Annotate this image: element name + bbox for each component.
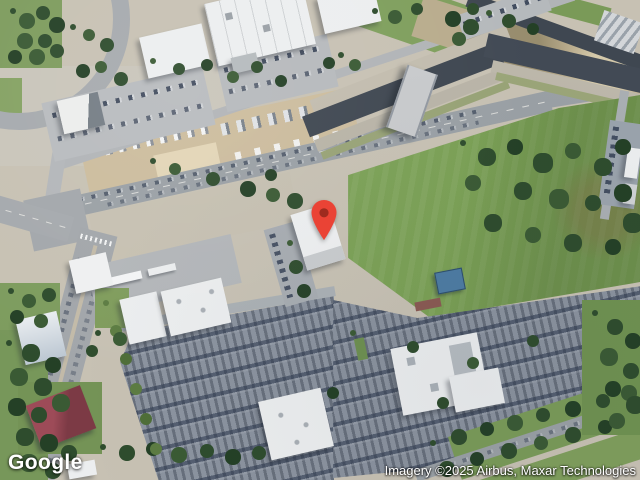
tree-cluster-southwest [6, 340, 12, 346]
google-watermark[interactable]: Google [8, 451, 83, 475]
tree-row-bottom [100, 444, 106, 450]
roof-unit [262, 24, 270, 32]
roof-unit [225, 12, 233, 20]
tree-row-bottomright-road [430, 440, 436, 446]
tree-dots-parking [350, 330, 356, 336]
tree-cluster [8, 288, 14, 294]
tree-cluster [95, 330, 101, 336]
roof-panel [449, 342, 476, 376]
tree-cluster [70, 24, 76, 30]
tree-row-median [103, 300, 109, 306]
crosswalk [80, 234, 114, 247]
pin-body [312, 200, 337, 240]
tree-cluster [372, 8, 378, 14]
roof-section [303, 245, 345, 270]
map-viewport[interactable]: Google Imagery ©2025 Airbus, Maxar Techn… [0, 0, 640, 480]
tree-strip-east-edge [592, 310, 598, 316]
imagery-attribution: Imagery ©2025 Airbus, Maxar Technologies [385, 463, 636, 478]
location-pin[interactable] [310, 199, 338, 241]
tree-cluster [150, 158, 156, 164]
roof-unit [406, 357, 415, 366]
tree-cluster-field [460, 140, 466, 146]
tree-cluster [150, 58, 156, 64]
green-strip-east-edge [582, 300, 640, 435]
tree-cluster [10, 8, 16, 14]
pin-dot [319, 208, 328, 217]
tree-cluster [486, 10, 492, 16]
tree-cluster [287, 240, 293, 246]
roof-unit [430, 383, 439, 392]
tree-cluster [338, 52, 344, 58]
